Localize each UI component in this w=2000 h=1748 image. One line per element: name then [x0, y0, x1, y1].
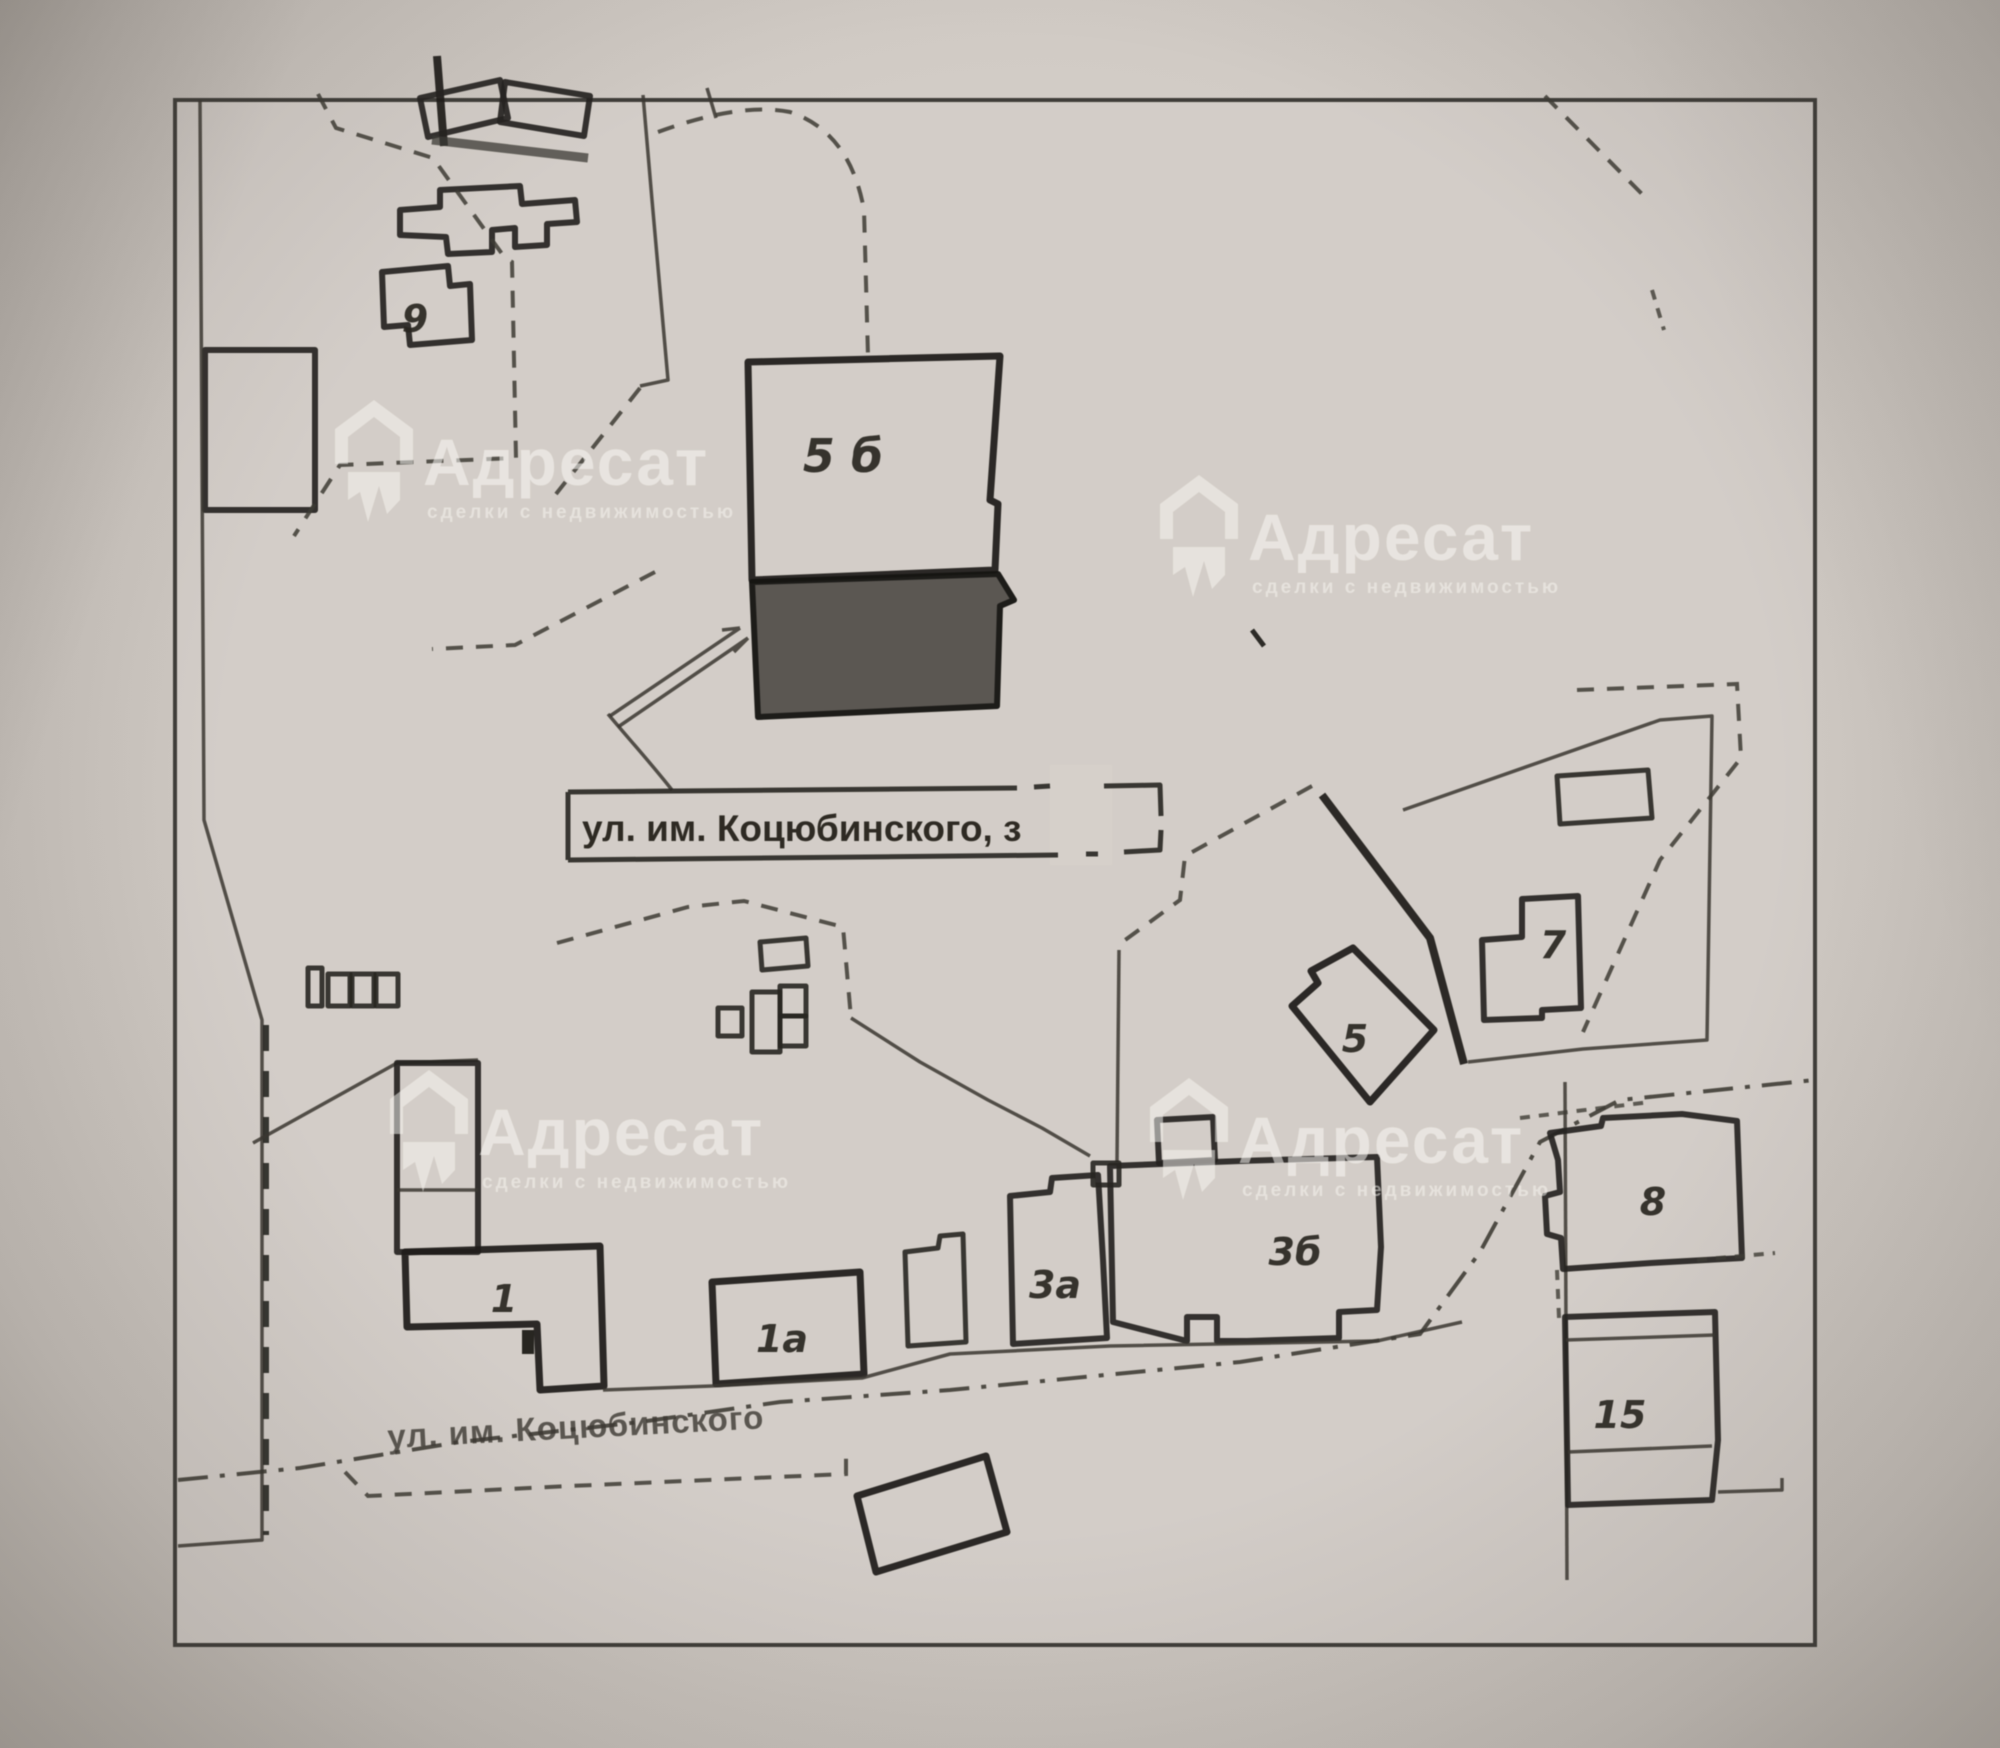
building-15-label: 15 [1594, 1393, 1647, 1437]
scanned-map-photo: Адресат сделки с недвижимостью Адресат с… [0, 0, 2000, 1748]
watermark-brand: Адресат [478, 1095, 764, 1169]
watermark-tagline: сделки с недвижимостью [1242, 1180, 1551, 1201]
building-3b-label: 3б [1269, 1230, 1322, 1274]
annotation-text: ул. им. Коцюбинского, з [582, 808, 1022, 849]
watermark-brand: Адресат [423, 425, 709, 499]
parcel-8-dashed-bit [1557, 1270, 1559, 1318]
watermark-brand: Адресат [1238, 1103, 1524, 1177]
building-5-label: 5 [1342, 1017, 1368, 1061]
building-8-label: 8 [1640, 1180, 1666, 1224]
watermark-brand: Адресат [1248, 500, 1534, 574]
building-3a-label: 3а [1029, 1263, 1081, 1307]
building-1a-label: 1а [756, 1317, 808, 1361]
erasure-patch [1050, 765, 1112, 865]
building-5b-shaded-part [752, 574, 1014, 717]
site-plan-svg: Адресат сделки с недвижимостью Адресат с… [0, 0, 2000, 1748]
small-mark-below-1 [522, 1330, 534, 1354]
watermark-tagline: сделки с недвижимостью [482, 1172, 791, 1193]
building-9-label: 9 [402, 297, 428, 341]
boundary-vertical-3b [1117, 950, 1119, 1162]
watermark-tagline: сделки с недвижимостью [1252, 577, 1561, 598]
watermark-tagline: сделки с недвижимостью [427, 502, 736, 523]
building-7-label: 7 [1540, 923, 1567, 967]
building-5b-label: 5 б [803, 429, 883, 483]
building-1-label: 1 [491, 1277, 517, 1321]
